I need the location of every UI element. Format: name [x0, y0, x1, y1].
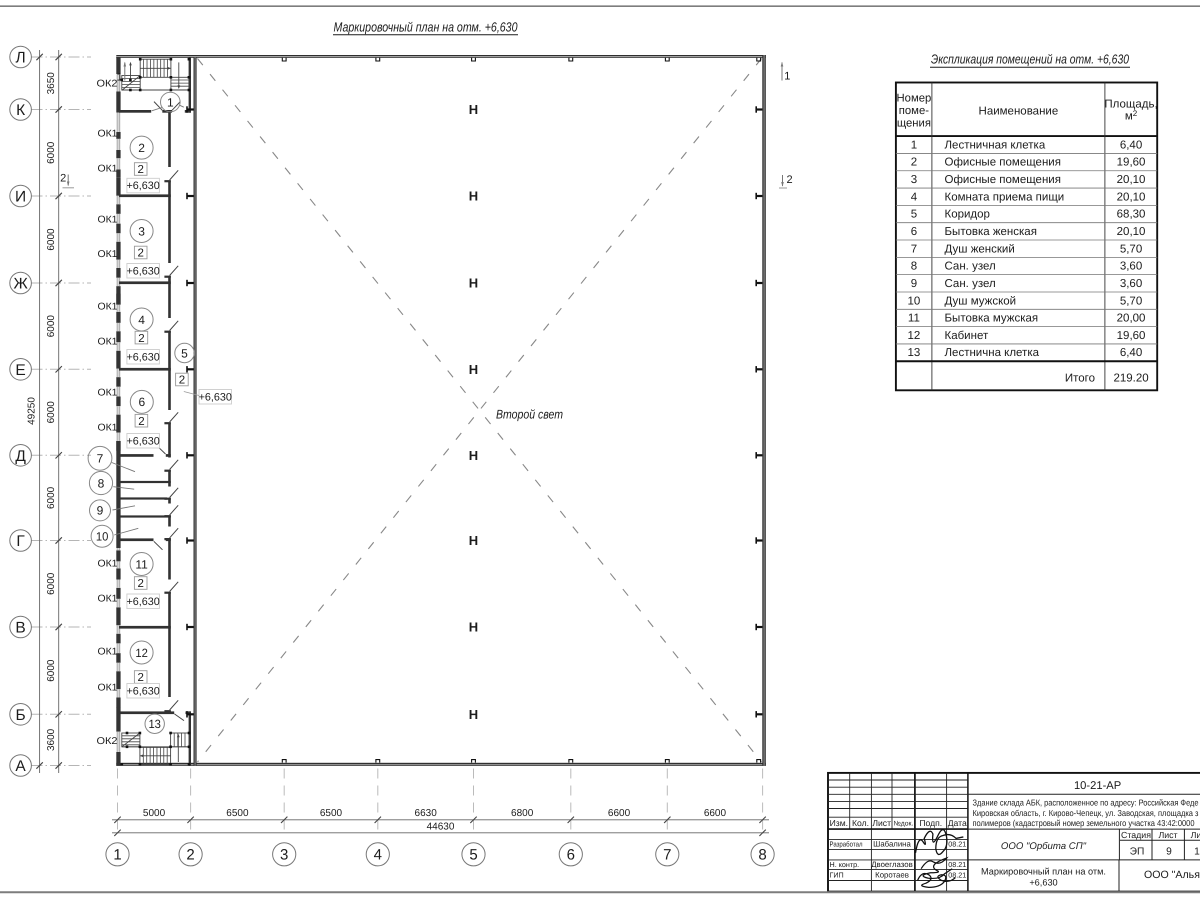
svg-text:5,70: 5,70 [1120, 243, 1142, 255]
svg-text:6000: 6000 [46, 315, 57, 338]
svg-text:08.21: 08.21 [948, 860, 966, 869]
svg-text:6000: 6000 [46, 228, 57, 251]
svg-text:20,10: 20,10 [1117, 226, 1146, 238]
svg-text:Е: Е [15, 362, 25, 379]
svg-text:5,70: 5,70 [1120, 295, 1142, 307]
svg-text:49250: 49250 [27, 397, 38, 425]
svg-text:И: И [15, 189, 26, 206]
svg-text:ОК2: ОК2 [97, 736, 118, 747]
svg-text:Душ женский: Душ женский [945, 243, 1015, 255]
svg-text:Ли: Ли [1191, 830, 1200, 840]
svg-text:2: 2 [60, 172, 66, 184]
svg-text:В: В [15, 620, 25, 637]
svg-text:№док.: №док. [893, 821, 913, 828]
svg-text:ОК1: ОК1 [98, 683, 119, 694]
svg-text:3600: 3600 [46, 728, 57, 751]
svg-text:2: 2 [138, 416, 144, 428]
svg-text:ОК1: ОК1 [98, 337, 119, 348]
svg-text:Стадия: Стадия [1121, 830, 1151, 840]
svg-text:ОК1: ОК1 [98, 129, 119, 140]
svg-text:1: 1 [117, 72, 123, 84]
svg-text:А: А [15, 758, 26, 775]
svg-text:2: 2 [787, 174, 793, 186]
svg-text:6000: 6000 [46, 659, 57, 682]
svg-text:Душ мужской: Душ мужской [945, 295, 1017, 307]
svg-text:Н: Н [469, 448, 478, 463]
svg-text:9: 9 [97, 504, 104, 518]
svg-text:08.21: 08.21 [948, 840, 966, 849]
svg-text:Лист: Лист [872, 818, 891, 828]
svg-text:7: 7 [911, 243, 917, 255]
svg-text:Г: Г [16, 533, 25, 550]
svg-text:7: 7 [97, 452, 104, 466]
svg-text:13: 13 [148, 717, 161, 731]
svg-text:ОК1: ОК1 [98, 559, 119, 570]
svg-text:Бытовка женская: Бытовка женская [945, 226, 1037, 238]
svg-text:5: 5 [911, 209, 917, 221]
svg-text:3: 3 [280, 847, 288, 864]
svg-text:6800: 6800 [511, 808, 534, 819]
svg-text:Кабинет: Кабинет [945, 330, 989, 342]
svg-text:5000: 5000 [143, 808, 166, 819]
svg-text:Д: Д [15, 448, 26, 465]
svg-text:3: 3 [911, 174, 917, 186]
svg-text:ОК1: ОК1 [98, 594, 119, 605]
svg-text:+6,630: +6,630 [199, 391, 232, 403]
svg-text:9: 9 [911, 278, 917, 290]
svg-text:3: 3 [138, 224, 145, 238]
svg-text:полимеров (кадастровый номер з: полимеров (кадастровый номер земельного … [973, 818, 1195, 828]
svg-text:Офисные помещения: Офисные помещения [945, 157, 1061, 169]
svg-text:2: 2 [179, 375, 185, 387]
svg-text:ОК1: ОК1 [98, 164, 119, 175]
svg-text:2: 2 [138, 141, 145, 155]
svg-text:6: 6 [567, 847, 575, 864]
svg-text:ГИП: ГИП [830, 871, 844, 880]
svg-text:6,40: 6,40 [1120, 347, 1142, 359]
svg-text:Разработал: Разработал [830, 840, 863, 849]
svg-text:Дата: Дата [948, 818, 967, 828]
svg-text:20,00: 20,00 [1117, 313, 1146, 325]
svg-text:Б: Б [16, 707, 26, 724]
svg-text:+6,630: +6,630 [126, 351, 159, 363]
svg-text:м2: м2 [1125, 109, 1138, 123]
svg-text:8: 8 [758, 847, 766, 864]
svg-text:2: 2 [137, 578, 143, 590]
svg-text:Итого: Итого [1065, 373, 1095, 385]
svg-text:6,40: 6,40 [1120, 139, 1142, 151]
svg-text:Номер: Номер [897, 93, 932, 105]
svg-text:Н: Н [469, 276, 478, 291]
svg-text:Коридор: Коридор [945, 209, 990, 221]
svg-text:Офисные помещения: Офисные помещения [945, 174, 1061, 186]
svg-text:11: 11 [908, 313, 920, 325]
svg-text:3,60: 3,60 [1120, 261, 1142, 273]
svg-text:+6,630: +6,630 [126, 265, 159, 277]
svg-text:ОК1: ОК1 [98, 302, 119, 313]
svg-text:ЭП: ЭП [1130, 847, 1145, 858]
svg-text:6600: 6600 [704, 808, 727, 819]
svg-text:219.20: 219.20 [1113, 373, 1148, 385]
svg-text:4: 4 [138, 313, 145, 327]
svg-text:6: 6 [911, 226, 917, 238]
svg-text:ООО "Альянс: ООО "Альянс [1144, 869, 1200, 881]
svg-text:2: 2 [137, 248, 143, 260]
svg-text:Маркировочный план на отм. +6,: Маркировочный план на отм. +6,630 [334, 20, 519, 35]
svg-text:6630: 6630 [415, 808, 438, 819]
svg-text:Н: Н [469, 620, 478, 635]
svg-text:Н: Н [469, 189, 478, 204]
svg-text:щения: щения [897, 118, 931, 130]
svg-text:+6,630: +6,630 [126, 180, 159, 192]
svg-text:4: 4 [911, 191, 918, 203]
svg-text:Н: Н [469, 707, 478, 722]
svg-text:5: 5 [181, 346, 188, 360]
svg-text:10-21-АР: 10-21-АР [1074, 780, 1121, 792]
svg-text:12: 12 [135, 646, 148, 660]
svg-text:Л: Л [16, 50, 26, 67]
svg-text:Комната приема пищи: Комната приема пищи [945, 191, 1065, 203]
svg-text:Маркировочный план на отм.: Маркировочный план на отм. [981, 866, 1106, 876]
svg-text:+6,630: +6,630 [126, 685, 159, 697]
svg-text:Наименование: Наименование [979, 106, 1059, 118]
svg-text:поме-: поме- [899, 105, 929, 117]
svg-text:Бытовка мужская: Бытовка мужская [945, 313, 1039, 325]
svg-text:+6,630: +6,630 [1029, 877, 1057, 887]
svg-text:6500: 6500 [226, 808, 249, 819]
svg-text:ОК1: ОК1 [98, 215, 119, 226]
svg-text:2: 2 [137, 164, 143, 176]
svg-text:Н. контр.: Н. контр. [830, 860, 860, 869]
svg-text:Сан. узел: Сан. узел [945, 278, 996, 290]
svg-text:К: К [16, 102, 25, 119]
svg-text:1: 1 [167, 95, 174, 109]
svg-text:1: 1 [1194, 847, 1200, 858]
svg-text:ОК1: ОК1 [98, 388, 119, 399]
svg-text:08.21: 08.21 [948, 871, 966, 880]
svg-text:10: 10 [96, 530, 109, 544]
svg-text:6000: 6000 [46, 401, 57, 424]
svg-text:6000: 6000 [46, 141, 57, 164]
svg-text:3650: 3650 [46, 72, 57, 95]
svg-text:6500: 6500 [320, 808, 343, 819]
svg-text:Здание склада АБК, расположенн: Здание склада АБК, расположенное по адре… [973, 797, 1199, 807]
svg-text:20,10: 20,10 [1117, 191, 1146, 203]
svg-text:1: 1 [113, 847, 121, 864]
svg-text:13: 13 [908, 347, 921, 359]
svg-text:19,60: 19,60 [1117, 157, 1146, 169]
svg-text:Площадь,: Площадь, [1104, 99, 1157, 111]
svg-text:ОК2: ОК2 [97, 79, 118, 90]
svg-text:5: 5 [469, 847, 477, 864]
svg-text:2: 2 [186, 847, 194, 864]
svg-text:ОК1: ОК1 [98, 249, 119, 260]
svg-text:1: 1 [911, 139, 917, 151]
svg-text:2: 2 [138, 333, 144, 345]
svg-text:Лестнична клетка: Лестнична клетка [945, 347, 1040, 359]
svg-text:1: 1 [784, 71, 790, 83]
svg-text:10: 10 [908, 295, 921, 307]
svg-text:8: 8 [911, 261, 917, 273]
svg-text:6600: 6600 [608, 808, 631, 819]
svg-text:Подп.: Подп. [919, 818, 942, 828]
svg-text:11: 11 [135, 557, 148, 571]
svg-text:Коротаев: Коротаев [875, 871, 909, 880]
svg-text:Кировская область, г. Кирово-Ч: Кировская область, г. Кирово-Чепецк, ул.… [973, 808, 1199, 818]
svg-text:2: 2 [911, 157, 917, 169]
svg-text:20,10: 20,10 [1117, 174, 1146, 186]
svg-text:+6,630: +6,630 [126, 596, 159, 608]
svg-text:Лестничная клетка: Лестничная клетка [945, 139, 1046, 151]
svg-text:Сан. узел: Сан. узел [945, 261, 996, 273]
svg-text:Лист: Лист [1158, 830, 1177, 840]
svg-text:6000: 6000 [46, 572, 57, 595]
svg-text:Кол.: Кол. [852, 818, 869, 828]
svg-text:3,60: 3,60 [1120, 278, 1142, 290]
svg-text:8: 8 [98, 476, 105, 490]
svg-text:19,60: 19,60 [1117, 330, 1146, 342]
svg-text:+6,630: +6,630 [126, 435, 159, 447]
svg-text:Н: Н [469, 362, 478, 377]
svg-text:ООО "Орбита СП": ООО "Орбита СП" [1001, 841, 1087, 852]
svg-text:6000: 6000 [46, 486, 57, 509]
svg-text:Н: Н [469, 533, 478, 548]
svg-text:7: 7 [663, 847, 671, 864]
svg-text:ОК1: ОК1 [98, 647, 119, 658]
svg-text:Изм.: Изм. [830, 818, 848, 828]
svg-text:9: 9 [1166, 847, 1172, 858]
svg-text:44630: 44630 [427, 822, 455, 833]
svg-text:Второй свет: Второй свет [496, 407, 563, 421]
svg-text:Н: Н [469, 102, 478, 117]
svg-text:2: 2 [137, 672, 143, 684]
svg-text:Двоеглазов: Двоеглазов [871, 860, 912, 869]
svg-text:Экспликация помещений на отм.: Экспликация помещений на отм. +6,630 [931, 52, 1130, 67]
svg-text:12: 12 [908, 330, 921, 342]
svg-text:Шабалина: Шабалина [873, 840, 911, 849]
svg-text:ОК1: ОК1 [98, 423, 119, 434]
svg-text:6: 6 [138, 395, 145, 409]
svg-text:Ж: Ж [13, 276, 28, 293]
svg-text:4: 4 [374, 847, 382, 864]
svg-text:68,30: 68,30 [1117, 209, 1146, 221]
